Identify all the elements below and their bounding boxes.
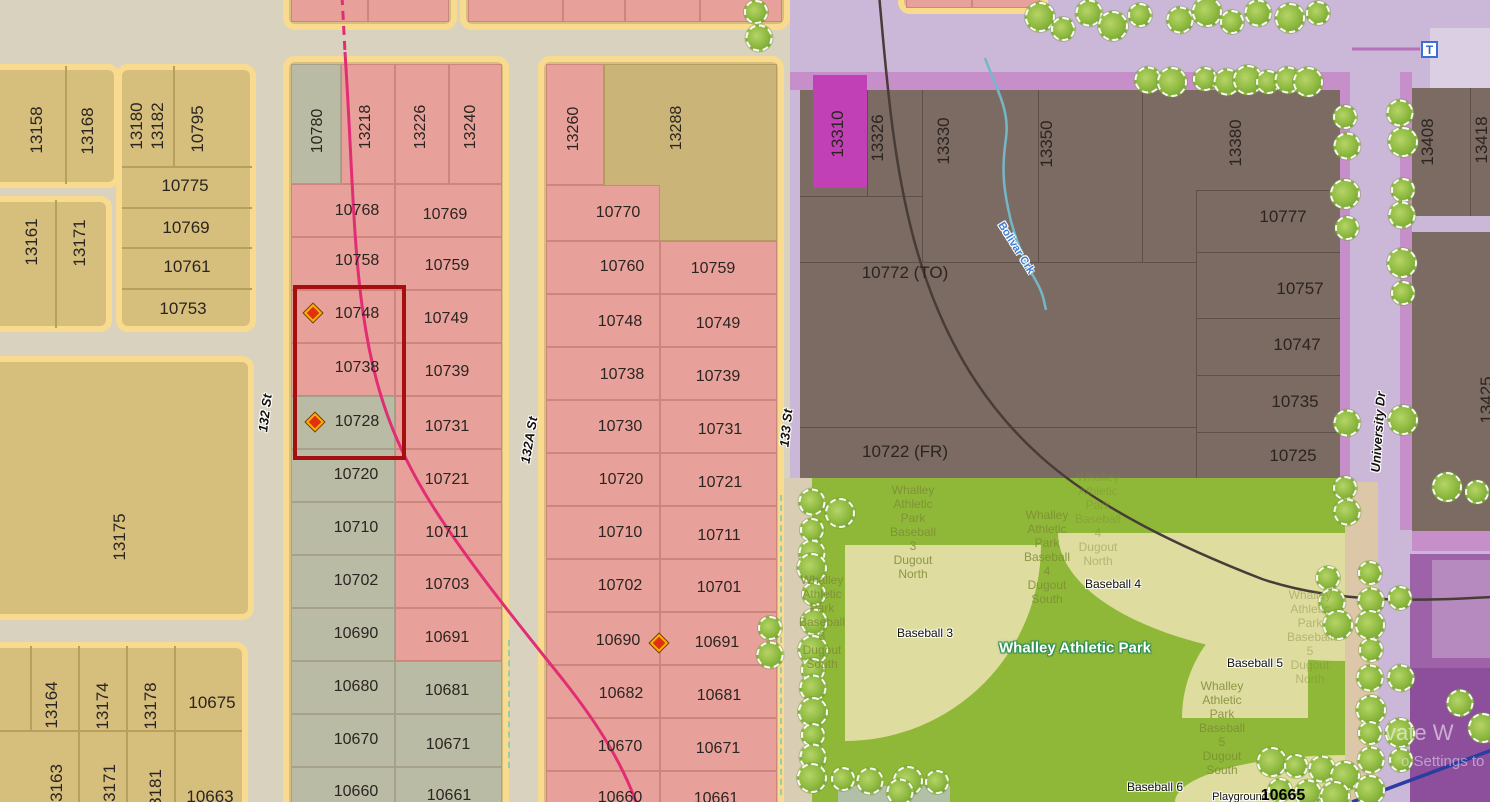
watermark-line-1: vate W [1385,720,1484,746]
activate-windows-watermark: vate W o Settings to [1385,720,1484,770]
transit-stop-label: T [1426,43,1433,57]
watermark-line-2: o Settings to [1401,753,1484,770]
markers-layer [0,0,1490,802]
point-marker-icon[interactable] [306,413,324,431]
point-marker-icon[interactable] [304,304,322,322]
point-marker-icon[interactable] [650,634,668,652]
transit-stop-icon[interactable]: T [1421,41,1438,58]
map-canvas[interactable]: 1315813168131801318210795107751076910761… [0,0,1490,802]
